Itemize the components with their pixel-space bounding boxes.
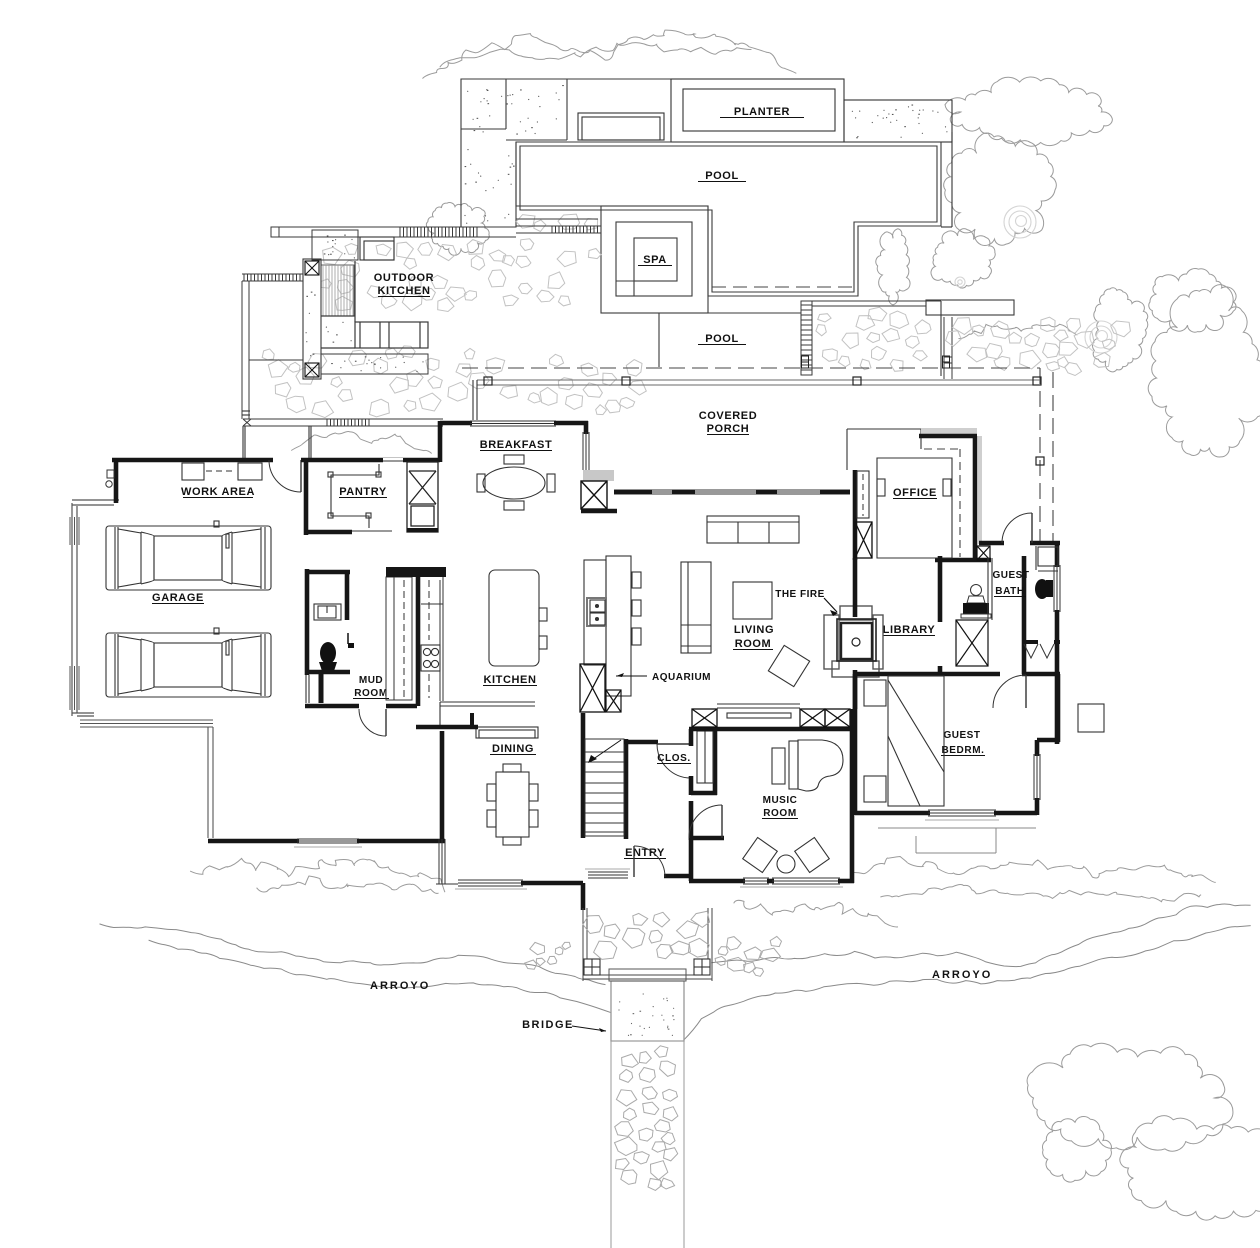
svg-text:KITCHEN: KITCHEN (483, 674, 536, 686)
svg-text:PANTRY: PANTRY (339, 486, 387, 498)
svg-text:PLANTER: PLANTER (734, 106, 790, 118)
svg-text:GARAGE: GARAGE (152, 592, 204, 604)
svg-text:LIBRARY: LIBRARY (883, 624, 936, 636)
svg-text:KITCHEN: KITCHEN (377, 285, 430, 297)
svg-text:THE FIRE: THE FIRE (775, 589, 825, 600)
svg-text:ARROYO: ARROYO (370, 980, 430, 992)
svg-text:CLOS.: CLOS. (657, 753, 691, 764)
svg-text:BATH: BATH (995, 586, 1024, 597)
svg-text:ARROYO: ARROYO (932, 969, 992, 981)
svg-text:MUD: MUD (359, 675, 383, 686)
svg-text:ROOM: ROOM (735, 638, 772, 650)
svg-text:BRIDGE: BRIDGE (522, 1019, 574, 1031)
svg-text:OUTDOOR: OUTDOOR (374, 272, 434, 284)
svg-text:ENTRY: ENTRY (625, 847, 665, 859)
svg-text:GUEST: GUEST (993, 570, 1030, 581)
svg-text:PORCH: PORCH (707, 423, 750, 435)
svg-text:OFFICE: OFFICE (893, 487, 937, 499)
svg-text:POOL: POOL (705, 333, 739, 345)
svg-text:POOL: POOL (705, 170, 739, 182)
svg-text:AQUARIUM: AQUARIUM (652, 672, 711, 683)
svg-text:MUSIC: MUSIC (763, 795, 798, 806)
svg-text:LIVING: LIVING (734, 624, 774, 636)
svg-text:GUEST: GUEST (944, 730, 981, 741)
svg-text:SPA: SPA (643, 254, 667, 266)
svg-text:ROOM: ROOM (763, 808, 797, 819)
svg-text:BREAKFAST: BREAKFAST (480, 439, 553, 451)
svg-text:BEDRM.: BEDRM. (941, 745, 984, 756)
svg-text:WORK AREA: WORK AREA (181, 486, 255, 498)
svg-text:ROOM: ROOM (354, 688, 388, 699)
svg-text:DINING: DINING (492, 743, 534, 755)
svg-text:COVERED: COVERED (699, 410, 758, 422)
